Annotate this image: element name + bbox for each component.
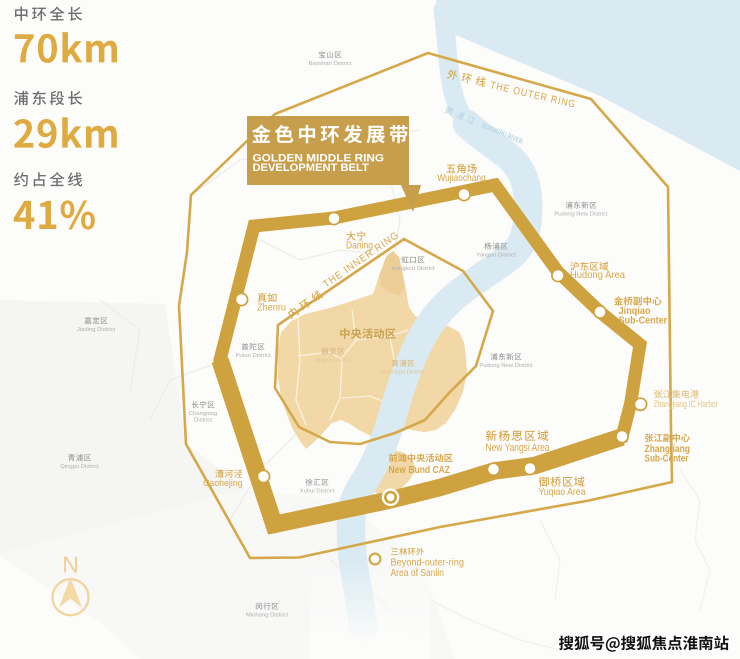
svg-text:Qingpu District: Qingpu District [60, 464, 99, 470]
svg-text:Area of Sanlin: Area of Sanlin [391, 568, 445, 579]
svg-text:N: N [62, 552, 79, 578]
svg-text:Wujiaochang: Wujiaochang [437, 173, 486, 184]
svg-text:Huangpu District: Huangpu District [381, 369, 425, 375]
svg-text:Hongkou District: Hongkou District [391, 266, 435, 272]
svg-text:Baoshan District: Baoshan District [309, 61, 352, 67]
svg-text:New Bund CAZ: New Bund CAZ [389, 465, 451, 476]
svg-text:Pudong New District: Pudong New District [479, 363, 533, 369]
svg-text:Yangpu District: Yangpu District [476, 252, 516, 258]
svg-text:Daning: Daning [346, 240, 373, 251]
svg-text:Hudong Area: Hudong Area [570, 270, 625, 281]
svg-text:Jingan District: Jingan District [315, 357, 352, 363]
svg-text:Beyond-outer-ring: Beyond-outer-ring [391, 557, 465, 568]
svg-text:Zhangjiang IC Harbor: Zhangjiang IC Harbor [654, 399, 719, 410]
svg-text:Xuhui District: Xuhui District [300, 488, 335, 494]
svg-text:New Yangsi Area: New Yangsi Area [486, 442, 551, 454]
svg-text:Pudong New District: Pudong New District [554, 211, 608, 217]
svg-text:Yuqiao Area: Yuqiao Area [539, 487, 586, 498]
svg-text:Putuo District: Putuo District [235, 353, 270, 359]
svg-text:Sub-Center: Sub-Center [645, 454, 689, 465]
svg-text:Zhenru: Zhenru [257, 302, 286, 313]
svg-text:Sub-Center: Sub-Center [619, 316, 668, 327]
svg-text:Jiading District: Jiading District [77, 327, 116, 333]
svg-text:Caohejing: Caohejing [203, 478, 243, 488]
svg-text:Minhang District: Minhang District [246, 612, 289, 618]
svg-text:District: District [194, 417, 212, 423]
svg-text:DEVELOPMENT BELT: DEVELOPMENT BELT [253, 162, 370, 174]
svg-text:Changning: Changning [189, 411, 218, 417]
